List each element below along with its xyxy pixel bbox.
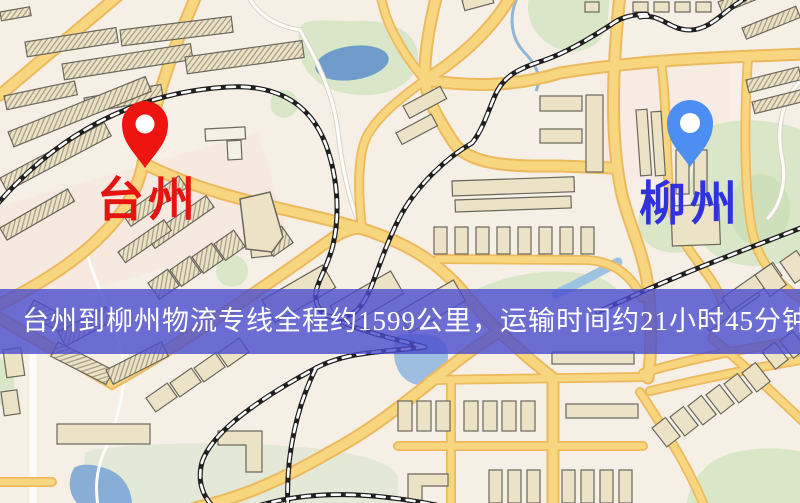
pin-hole (680, 113, 700, 133)
map-canvas[interactable]: 台州 柳州 (0, 0, 800, 503)
logistics-route-map: 台州 柳州 台州到柳州物流专线全程约1599公里，运输时间约21小时45分钟. (0, 0, 800, 503)
destination-label: 柳州 (639, 179, 741, 231)
route-info-text: 台州到柳州物流专线全程约1599公里，运输时间约21小时45分钟. (0, 289, 800, 354)
pin-hole (136, 115, 155, 134)
origin-label: 台州 (97, 175, 199, 227)
route-info-banner: 台州到柳州物流专线全程约1599公里，运输时间约21小时45分钟. (0, 289, 800, 354)
